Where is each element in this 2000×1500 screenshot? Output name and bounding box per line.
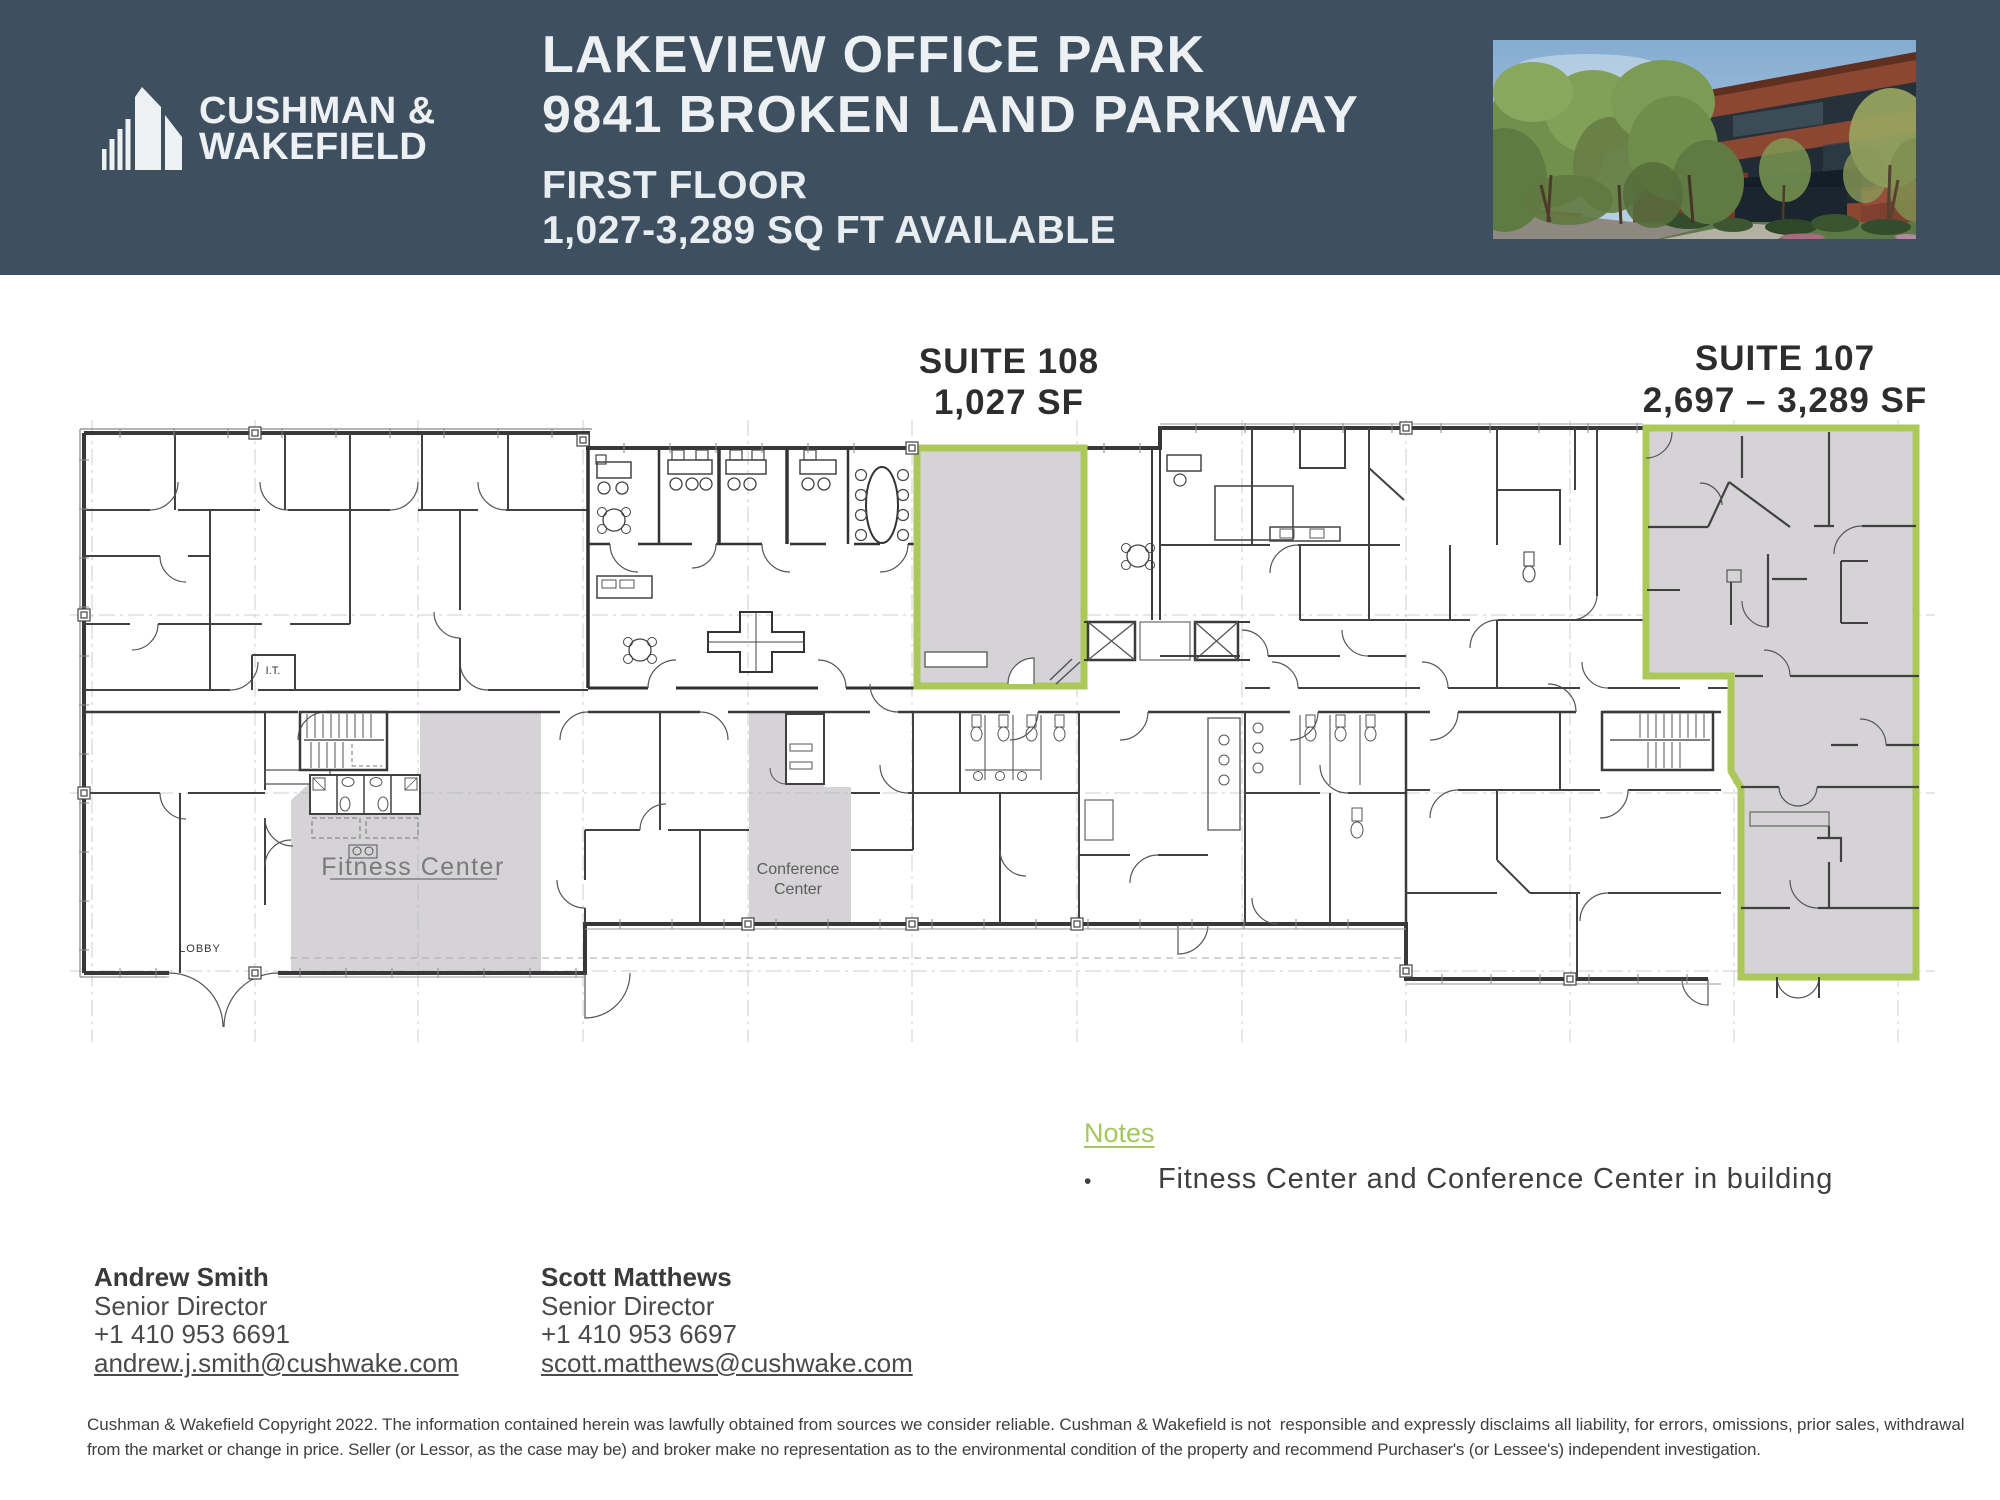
svg-text:LOBBY: LOBBY [179, 943, 221, 955]
svg-text:Center: Center [774, 881, 823, 898]
svg-text:Conference: Conference [757, 861, 840, 878]
svg-text:I.T.: I.T. [266, 665, 281, 677]
svg-text:Fitness Center: Fitness Center [321, 853, 505, 881]
